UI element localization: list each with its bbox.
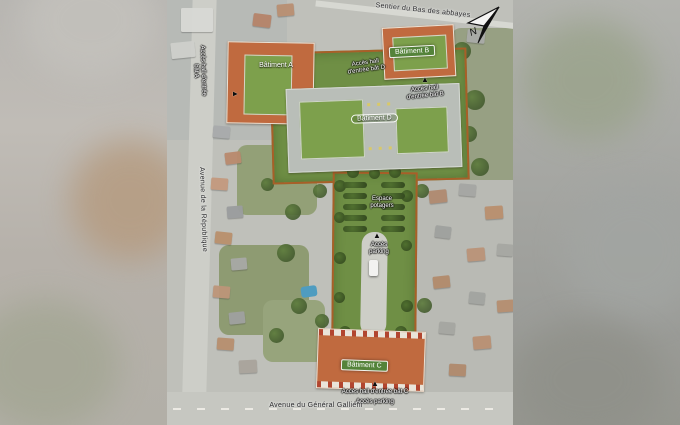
tree — [465, 90, 485, 110]
house-roof — [252, 13, 271, 28]
house-roof — [449, 364, 467, 377]
parked-car — [369, 260, 378, 276]
house-roof — [214, 231, 232, 245]
blur-blob — [563, 180, 680, 320]
tree — [417, 298, 432, 313]
blurred-backdrop-left — [0, 0, 167, 425]
bush — [334, 292, 345, 303]
bush — [401, 240, 412, 251]
house-roof — [227, 205, 244, 218]
building-c-roof-dormers — [319, 329, 425, 339]
bush — [401, 300, 413, 312]
hedge-row — [381, 226, 405, 232]
house-roof — [224, 151, 241, 165]
tree — [277, 244, 295, 262]
blur-blob — [523, 20, 653, 140]
house-roof — [497, 299, 513, 312]
tree — [471, 158, 489, 176]
house-roof — [434, 225, 451, 239]
tree — [315, 314, 329, 328]
building-d-label: Bâtiment D — [351, 113, 398, 124]
blur-blob — [70, 140, 167, 260]
rooflight — [369, 147, 372, 150]
building-d-roof-garden-right — [395, 106, 449, 154]
rooflight — [377, 103, 380, 106]
house-roof — [466, 247, 485, 262]
house-roof — [472, 335, 491, 350]
hedge-row — [381, 182, 405, 188]
building-c-label: Bâtiment C — [341, 359, 388, 372]
espace-potagers-label: Espace potagers — [363, 196, 401, 210]
hedge-row — [343, 226, 367, 232]
swimming-pool — [300, 285, 317, 298]
house-roof — [213, 285, 231, 298]
building-d-roof-garden-left — [299, 99, 365, 159]
rooflight — [389, 146, 392, 149]
house-roof — [485, 205, 504, 219]
house-roof — [213, 125, 231, 138]
tree — [269, 328, 284, 343]
blur-blob — [513, 320, 663, 425]
hedge-row — [343, 215, 367, 221]
house-roof — [468, 291, 485, 305]
aerial-site-map: Bâtiment A Bâtiment B Bâtiment D Bâtimen… — [0, 0, 680, 425]
house-roof — [231, 257, 248, 270]
house-roof — [228, 311, 245, 325]
house-roof — [239, 360, 258, 374]
house-roof — [439, 321, 456, 334]
hedge-row — [343, 182, 367, 188]
tree — [285, 204, 301, 220]
house-roof — [211, 177, 229, 190]
house-roof — [428, 189, 447, 204]
building-a-label: Bâtiment A — [241, 62, 311, 69]
aerial-photo: Bâtiment A Bâtiment B Bâtiment D Bâtimen… — [167, 0, 513, 425]
access-a-arrow: ▲ — [231, 90, 239, 98]
house-roof — [181, 8, 213, 32]
rooflight — [379, 147, 382, 150]
blurred-backdrop-right — [513, 0, 680, 425]
house-roof — [459, 183, 477, 196]
compass-n-letter: N — [468, 26, 480, 39]
hedge-row — [381, 215, 405, 221]
house-roof — [432, 275, 450, 289]
access-b-arrow: ▲ — [421, 76, 429, 84]
tree — [313, 184, 327, 198]
north-compass-icon: N — [463, 2, 507, 48]
street-bottom-label: Avenue du Général Galliéni — [241, 402, 391, 409]
house-roof — [497, 243, 513, 256]
access-hall-a-label: Accès hall d'entrée bât A — [191, 43, 207, 99]
access-c-arrow: ▲ — [371, 380, 379, 388]
rooflight — [387, 102, 390, 105]
blur-blob — [0, 300, 120, 425]
access-parking-arrow: ▲ — [373, 232, 381, 240]
access-hall-c-label: Accès hall d'entrée bât C — [333, 389, 417, 396]
rooflight — [367, 103, 370, 106]
bush — [334, 252, 346, 264]
blur-blob — [20, 0, 160, 80]
access-parking-mid-label: Accès parking — [365, 242, 393, 256]
house-roof — [277, 3, 295, 16]
tree — [291, 298, 307, 314]
house-roof — [217, 337, 235, 350]
